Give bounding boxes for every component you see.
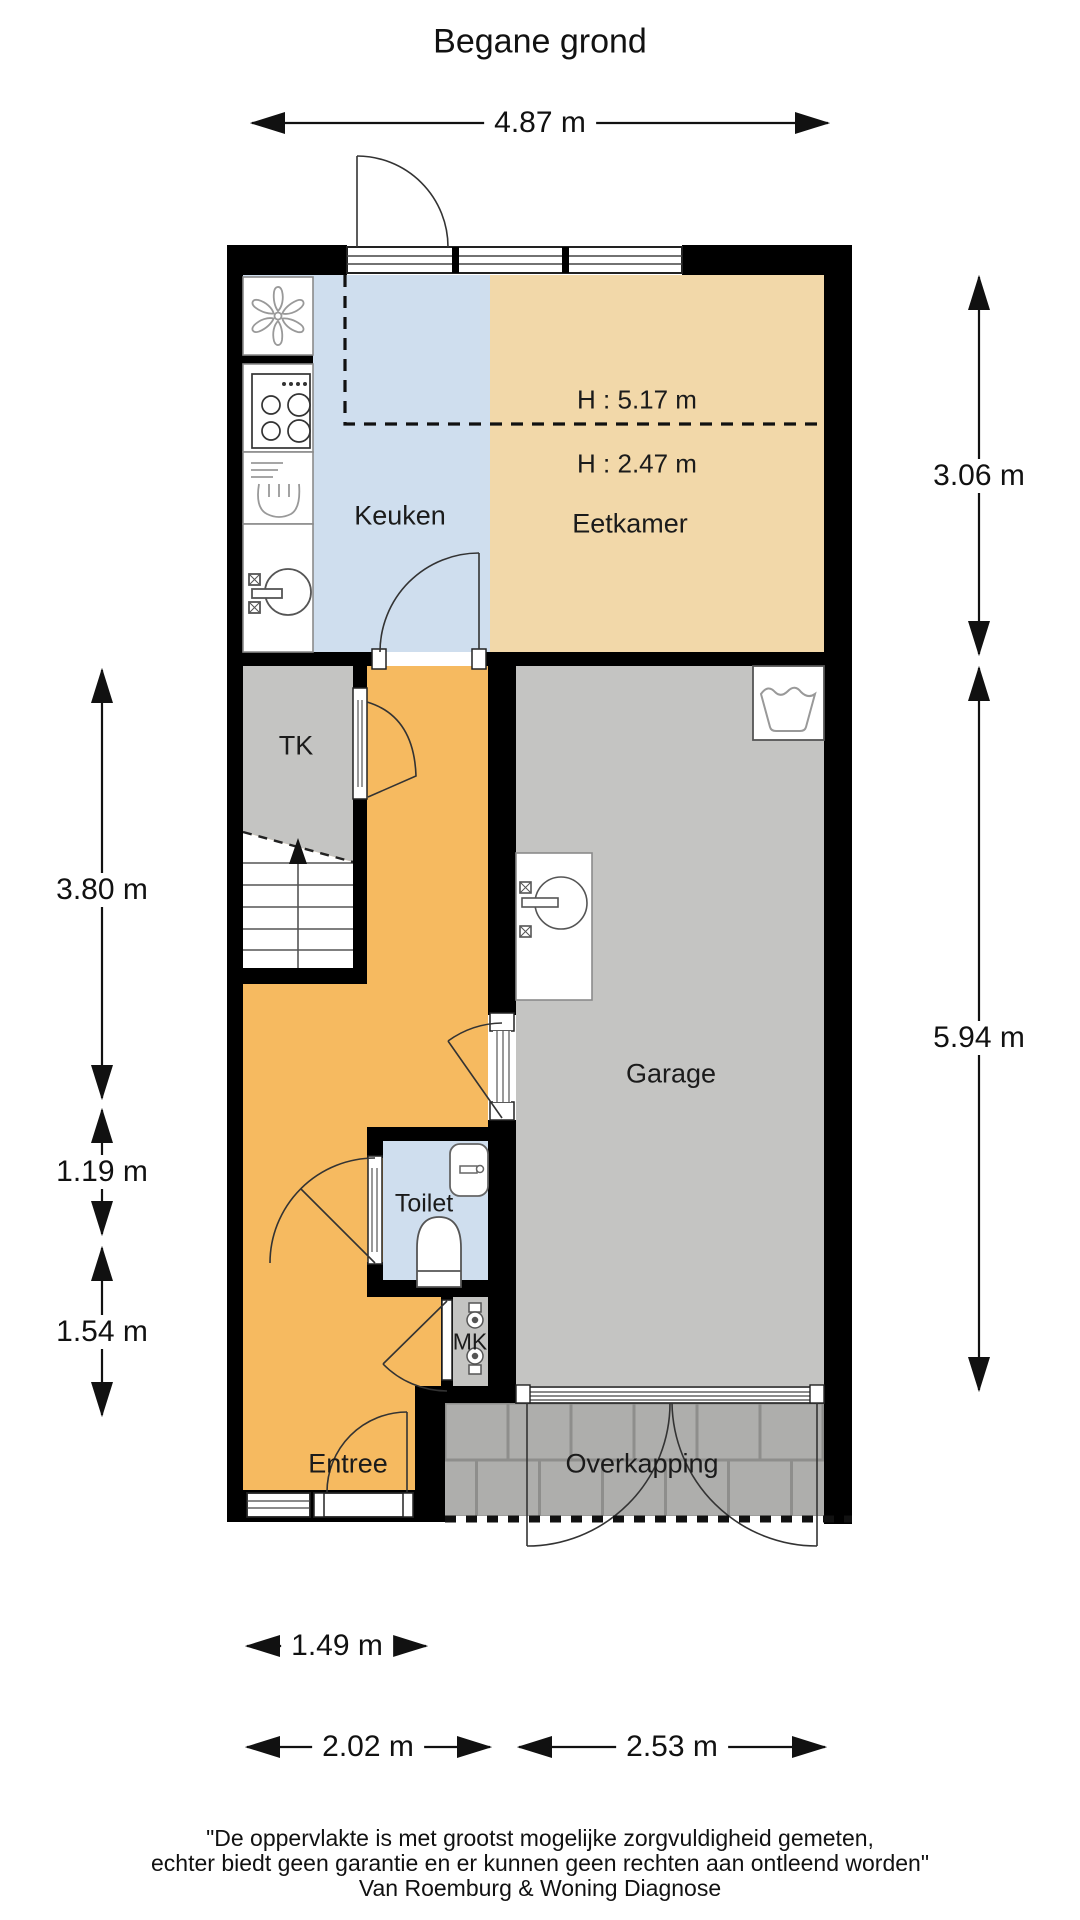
dim-label-top-width: 4.87 m (484, 106, 596, 140)
dim-label-right-lower: 5.94 m (923, 1021, 1035, 1055)
room-garage (516, 666, 824, 1386)
room-label-garage: Garage (626, 1059, 716, 1090)
room-label-tk: TK (279, 731, 314, 762)
dim-label-left-lower: 1.54 m (46, 1315, 158, 1349)
wall-stairs-bottom (227, 968, 367, 984)
room-label-overkapping: Overkapping (565, 1449, 718, 1480)
dim-label-bottom-hall: 2.02 m (312, 1730, 424, 1764)
dim-label-right-upper: 3.06 m (923, 459, 1035, 493)
room-label-mk: MK (453, 1329, 488, 1356)
room-label-eetkamer: Eetkamer (572, 509, 688, 540)
garage-washbasin (516, 853, 592, 1000)
wall-garage-left-lower (488, 1120, 516, 1403)
kitchen-counter (243, 277, 313, 652)
wall-kitchen-bottom-left (227, 652, 373, 666)
room-label-toilet: Toilet (395, 1190, 453, 1219)
page-title: Begane grond (433, 23, 647, 62)
garage-rear-doors (516, 1385, 824, 1403)
floor-plan-page: Begane grond 4.87 m 3.06 m 5.94 m 3.80 m… (0, 0, 1080, 1920)
disclaimer-line-2: echter biedt geen garantie en er kunnen … (40, 1851, 1040, 1876)
room-label-entree: Entree (308, 1449, 388, 1480)
floor-plan-drawing (0, 0, 1080, 1920)
wall-left (227, 245, 243, 1522)
stove-icon (252, 374, 310, 448)
disclaimer-line-1: "De oppervlakte is met grootst mogelijke… (40, 1826, 1040, 1851)
height-note-upper: H : 5.17 m (577, 385, 697, 416)
dim-label-left-middle: 1.19 m (46, 1155, 158, 1189)
wall-garage-left-upper (488, 666, 516, 1015)
wall-toilet-top (367, 1127, 488, 1141)
height-note-lower: H : 2.47 m (577, 449, 697, 480)
toilet-washbasin (450, 1144, 488, 1196)
washing-machine (753, 666, 824, 740)
kitchen-sink-icon (249, 569, 311, 615)
dim-label-bottom-entree: 1.49 m (281, 1629, 393, 1663)
wc-icon (417, 1217, 461, 1287)
room-label-keuken: Keuken (354, 501, 446, 532)
wall-top-left (227, 245, 347, 275)
top-door-swing (357, 156, 448, 247)
room-tk (243, 666, 353, 862)
dim-label-bottom-garage: 2.53 m (616, 1730, 728, 1764)
wall-counter-stub (243, 355, 313, 364)
dim-label-left-upper: 3.80 m (46, 873, 158, 907)
top-window (347, 247, 682, 273)
disclaimer-line-3: Van Roemburg & Woning Diagnose (40, 1876, 1040, 1901)
wall-kitchen-bottom-right (486, 652, 838, 666)
disclaimer: "De oppervlakte is met grootst mogelijke… (40, 1826, 1040, 1901)
wall-right (824, 245, 852, 1524)
